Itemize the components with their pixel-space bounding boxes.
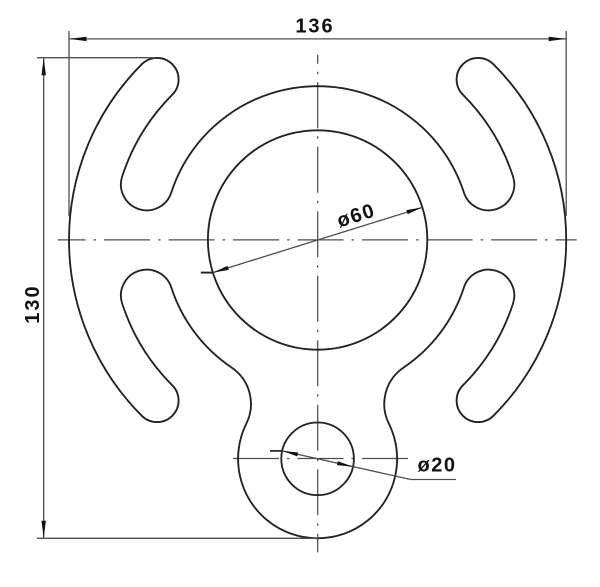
svg-text:136: 136 (295, 16, 334, 38)
svg-text:ø20: ø20 (418, 455, 457, 477)
svg-text:130: 130 (22, 284, 44, 323)
